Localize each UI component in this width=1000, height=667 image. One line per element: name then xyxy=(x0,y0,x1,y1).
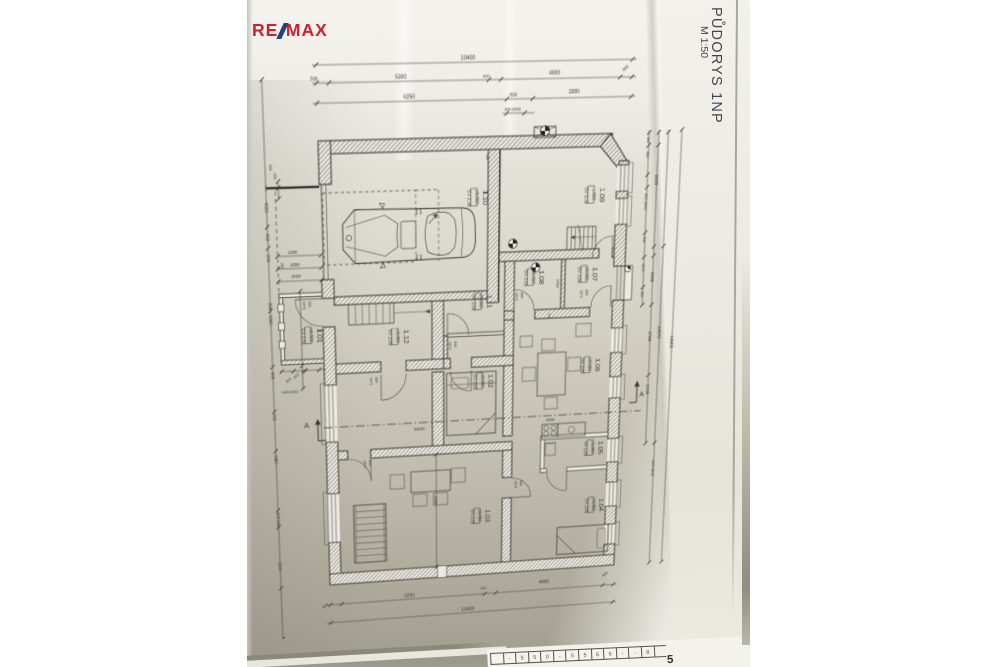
svg-text:400: 400 xyxy=(601,571,608,578)
svg-text:SV 2,60: SV 2,60 xyxy=(387,329,392,346)
svg-text:4190: 4190 xyxy=(434,496,438,505)
svg-text:SV 2,60: SV 2,60 xyxy=(523,270,528,287)
svg-text:530: 530 xyxy=(642,237,647,244)
svg-text:±0,000: ±0,000 xyxy=(480,374,485,388)
svg-text:850: 850 xyxy=(510,92,518,98)
svg-text:800: 800 xyxy=(374,377,378,384)
svg-text:400: 400 xyxy=(285,376,293,384)
svg-text:SV 3,30: SV 3,30 xyxy=(583,187,589,204)
svg-text:1.05: 1.05 xyxy=(596,441,604,455)
svg-text:1.03: 1.03 xyxy=(484,509,492,523)
svg-text:400: 400 xyxy=(483,73,490,78)
svg-text:900: 900 xyxy=(307,301,312,308)
svg-text:1610: 1610 xyxy=(277,562,282,571)
svg-text:1.09: 1.09 xyxy=(598,187,606,202)
svg-text:850: 850 xyxy=(645,152,650,159)
svg-text:6250: 6250 xyxy=(404,94,415,100)
svg-text:300: 300 xyxy=(640,291,644,298)
svg-text:SV 2,60: SV 2,60 xyxy=(576,267,582,284)
svg-text:1750: 1750 xyxy=(555,279,559,289)
svg-text:200: 200 xyxy=(267,303,273,311)
svg-text:A: A xyxy=(639,389,644,398)
svg-text:400: 400 xyxy=(321,602,329,609)
svg-text:4000: 4000 xyxy=(539,580,549,585)
svg-text:1.08: 1.08 xyxy=(537,270,545,285)
svg-text:1.01: 1.01 xyxy=(315,328,323,343)
svg-text:3000: 3000 xyxy=(649,272,654,283)
svg-text:2135: 2135 xyxy=(644,384,649,394)
svg-text:1970: 1970 xyxy=(448,342,452,351)
svg-text:10570: 10570 xyxy=(656,326,662,339)
svg-text:1.02: 1.02 xyxy=(487,374,495,389)
svg-text:300: 300 xyxy=(310,76,318,82)
svg-text:±0,000: ±0,000 xyxy=(530,269,535,284)
svg-text:800: 800 xyxy=(519,480,523,486)
svg-text:400: 400 xyxy=(480,586,486,590)
svg-text:800: 800 xyxy=(585,289,589,296)
svg-text:1800: 1800 xyxy=(267,315,273,325)
svg-text:1970: 1970 xyxy=(363,460,367,469)
svg-text:3030: 3030 xyxy=(653,174,659,185)
svg-text:1.12: 1.12 xyxy=(402,329,410,344)
svg-text:1970: 1970 xyxy=(302,301,307,310)
svg-text:200: 200 xyxy=(265,255,271,263)
svg-text:450: 450 xyxy=(273,173,278,180)
svg-text:±0,000: ±0,000 xyxy=(474,189,479,204)
svg-text:400: 400 xyxy=(646,137,651,144)
svg-text:±0,000: ±0,000 xyxy=(478,294,483,309)
svg-text:600: 600 xyxy=(453,341,457,348)
svg-text:1000: 1000 xyxy=(290,262,300,267)
svg-text:1400 (800): 1400 (800) xyxy=(650,459,655,477)
svg-text:150: 150 xyxy=(547,313,551,319)
svg-text:400: 400 xyxy=(485,154,490,161)
svg-text:1970: 1970 xyxy=(515,292,519,301)
svg-text:10400: 10400 xyxy=(461,55,476,61)
svg-text:1790: 1790 xyxy=(646,331,651,341)
svg-text:1970: 1970 xyxy=(369,377,373,386)
svg-text:700: 700 xyxy=(271,414,277,422)
svg-text:900: 900 xyxy=(270,372,276,380)
svg-text:450: 450 xyxy=(264,233,270,241)
svg-text:4520: 4520 xyxy=(263,202,269,213)
svg-text:±0,000: ±0,000 xyxy=(477,509,482,522)
svg-text:600 (800): 600 (800) xyxy=(505,106,522,111)
svg-text:SV 2,30: SV 2,30 xyxy=(466,190,471,208)
svg-text:1400 (900): 1400 (900) xyxy=(281,389,298,394)
svg-text:1800: 1800 xyxy=(273,455,279,465)
svg-text:SV 2,60: SV 2,60 xyxy=(582,441,587,457)
svg-text:SV 2,60: SV 2,60 xyxy=(469,509,474,524)
svg-text:10400: 10400 xyxy=(461,607,474,613)
svg-text:SV 2,50: SV 2,50 xyxy=(300,328,306,345)
svg-text:SV 2,60: SV 2,60 xyxy=(583,498,588,513)
svg-text:800: 800 xyxy=(520,292,524,299)
svg-text:4000: 4000 xyxy=(549,70,560,76)
svg-text:5300: 5300 xyxy=(395,74,406,80)
svg-text:800: 800 xyxy=(368,460,372,467)
svg-text:1970: 1970 xyxy=(514,481,518,489)
svg-text:1.11: 1.11 xyxy=(485,294,493,308)
svg-text:100 (45): 100 (45) xyxy=(275,512,281,528)
svg-text:-1,000: -1,000 xyxy=(591,187,597,201)
svg-text:SV 2,60: SV 2,60 xyxy=(579,358,584,374)
svg-text:1970: 1970 xyxy=(641,263,646,272)
svg-text:250: 250 xyxy=(280,263,285,270)
svg-text:A: A xyxy=(304,421,310,430)
svg-text:1.04: 1.04 xyxy=(597,498,605,512)
svg-text:3300: 3300 xyxy=(569,89,580,95)
svg-text:±0,000: ±0,000 xyxy=(590,440,595,454)
svg-text:±0,000: ±0,000 xyxy=(395,329,400,343)
svg-text:14800: 14800 xyxy=(668,335,674,348)
svg-text:5200: 5200 xyxy=(414,427,424,433)
svg-text:1970: 1970 xyxy=(579,290,583,299)
svg-text:±0,000: ±0,000 xyxy=(308,328,314,343)
svg-text:400: 400 xyxy=(621,64,629,73)
svg-text:400: 400 xyxy=(292,372,300,380)
svg-text:SV 2,60: SV 2,60 xyxy=(472,374,477,390)
svg-text:1260: 1260 xyxy=(288,250,298,255)
svg-text:4000: 4000 xyxy=(546,418,555,423)
svg-text:200: 200 xyxy=(268,164,273,171)
svg-text:1.07: 1.07 xyxy=(591,267,599,282)
svg-text:SV 2,60: SV 2,60 xyxy=(470,294,475,311)
svg-text:±0,000: ±0,000 xyxy=(591,498,596,511)
svg-text:±0,000: ±0,000 xyxy=(587,357,592,371)
svg-text:1.06: 1.06 xyxy=(594,358,602,372)
svg-text:1.10: 1.10 xyxy=(481,190,489,206)
svg-text:600 (800): 600 (800) xyxy=(643,193,648,210)
svg-text:5200: 5200 xyxy=(405,593,415,599)
svg-text:2020: 2020 xyxy=(291,274,301,279)
svg-text:±0,000: ±0,000 xyxy=(584,266,590,280)
